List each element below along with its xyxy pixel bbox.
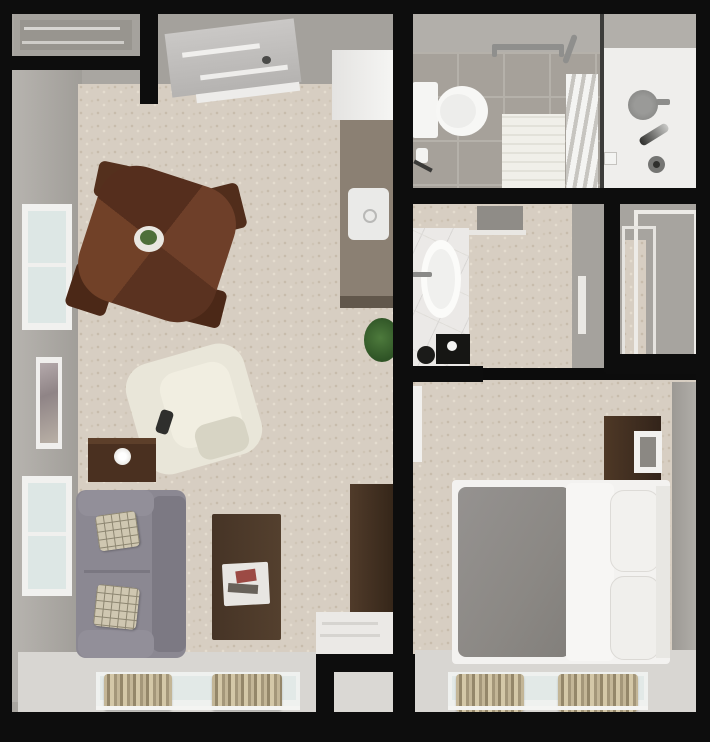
shower-valve-center bbox=[653, 161, 660, 168]
wall-alcove-bottom bbox=[6, 56, 146, 70]
soap-niche bbox=[604, 152, 617, 165]
entry-door-handle bbox=[262, 56, 271, 64]
vanity-stool bbox=[417, 346, 435, 364]
sofa-back-cushion bbox=[152, 496, 186, 652]
wardrobe-cabinet bbox=[350, 484, 394, 614]
wall-closet-south bbox=[606, 354, 710, 374]
bedroom-south-window-sill bbox=[448, 706, 648, 710]
west-window-2-glass bbox=[28, 483, 66, 589]
kitchen-counter-edge bbox=[340, 296, 397, 308]
wall-central bbox=[393, 12, 413, 712]
dressing-door-trim bbox=[578, 276, 586, 334]
sofa-arm-bottom bbox=[78, 630, 154, 658]
vanity-sink-inner bbox=[427, 249, 455, 309]
bed-headboard bbox=[656, 486, 670, 658]
utility-nook-floor bbox=[334, 670, 392, 714]
alcove-shelf-line-1 bbox=[24, 27, 120, 30]
west-window-1-glass bbox=[28, 211, 66, 323]
shower-head bbox=[628, 90, 658, 120]
shower-head-arm bbox=[656, 99, 670, 105]
wall-dressing-south bbox=[405, 366, 483, 382]
dressing-east-wall-face bbox=[572, 204, 604, 368]
refrigerator bbox=[332, 50, 396, 120]
bed-pillow-2 bbox=[610, 576, 660, 660]
grab-bar-end-left bbox=[492, 44, 497, 57]
toilet-tank bbox=[412, 82, 438, 138]
white-dresser-line-1 bbox=[322, 622, 378, 625]
table-lamp bbox=[114, 448, 131, 465]
bath-mat bbox=[502, 114, 565, 188]
closet-sliding-door-inner bbox=[622, 226, 656, 358]
vanity-tray-dot bbox=[447, 341, 457, 351]
side-table-top-edge bbox=[88, 438, 156, 444]
living-south-curtain-right bbox=[212, 674, 282, 710]
west-window-2-mullion bbox=[28, 532, 66, 536]
vanity-faucet bbox=[412, 272, 432, 277]
bed-sheet-fold bbox=[566, 483, 614, 661]
floor-plan-image bbox=[0, 0, 710, 745]
bed-duvet bbox=[458, 487, 570, 657]
wall-nook-left bbox=[316, 668, 334, 726]
bed-pillow-1 bbox=[610, 490, 660, 572]
wall-alcove-right bbox=[140, 12, 158, 104]
wall-frame-top bbox=[0, 0, 710, 14]
living-south-curtain-left bbox=[104, 674, 172, 710]
wall-closet-west bbox=[604, 204, 620, 372]
grab-bar bbox=[492, 44, 564, 50]
bedroom-open-door bbox=[413, 386, 422, 462]
wall-artwork-print bbox=[40, 363, 58, 443]
sofa-pillow-1 bbox=[95, 510, 141, 551]
sofa-seat-seam bbox=[84, 570, 150, 573]
entry-alcove-shelf bbox=[20, 20, 132, 50]
bedroom-east-wall-face bbox=[672, 382, 696, 650]
white-dresser-line-2 bbox=[320, 634, 380, 637]
kitchen-faucet bbox=[363, 209, 377, 223]
wall-bathroom-south bbox=[405, 188, 710, 204]
towel-shelf bbox=[566, 74, 598, 188]
living-south-window-sill bbox=[96, 706, 300, 710]
toilet-seat-shadow bbox=[440, 94, 476, 128]
wall-frame-bottom bbox=[0, 712, 710, 742]
alcove-shelf-line-2 bbox=[22, 41, 124, 44]
table-centerpiece-plant bbox=[140, 230, 157, 245]
west-window-1-mullion bbox=[28, 263, 66, 267]
dressing-floor-mat bbox=[477, 206, 523, 232]
sofa-pillow-2 bbox=[93, 584, 140, 630]
nightstand-mirror-inner bbox=[640, 437, 656, 467]
wall-frame-left bbox=[0, 0, 10, 742]
